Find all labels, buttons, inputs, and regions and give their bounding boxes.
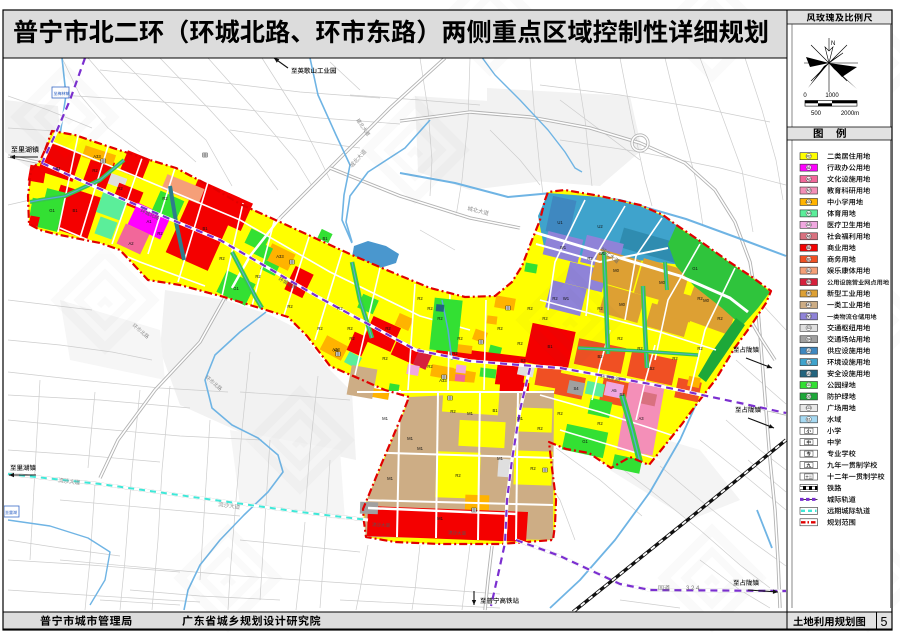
svg-text:U1: U1 <box>807 349 811 353</box>
svg-text:M0: M0 <box>703 298 709 303</box>
svg-text:A6: A6 <box>807 234 811 238</box>
svg-text:R2: R2 <box>347 326 353 331</box>
svg-text:M1: M1 <box>467 411 473 416</box>
svg-text:B1: B1 <box>202 226 208 231</box>
svg-text:M0: M0 <box>659 280 665 285</box>
svg-text:M1: M1 <box>387 476 393 481</box>
svg-text:R2: R2 <box>717 316 723 321</box>
svg-text:M1: M1 <box>806 303 811 307</box>
svg-text:S3: S3 <box>807 326 811 330</box>
svg-text:R2: R2 <box>382 356 388 361</box>
svg-text:R2: R2 <box>517 341 523 346</box>
svg-text:B1: B1 <box>72 208 78 213</box>
svg-text:R2: R2 <box>455 473 461 478</box>
svg-text:M1: M1 <box>437 516 443 521</box>
svg-text:R2: R2 <box>219 256 225 261</box>
svg-text:M1: M1 <box>497 456 503 461</box>
svg-text:G2: G2 <box>806 395 811 399</box>
svg-text:U1: U1 <box>557 220 563 225</box>
svg-text:R2: R2 <box>557 411 563 416</box>
svg-text:R2: R2 <box>530 466 536 471</box>
svg-text:S4: S4 <box>807 337 811 341</box>
svg-text:W1: W1 <box>560 245 567 250</box>
svg-text:A33: A33 <box>276 254 284 259</box>
svg-text:M1: M1 <box>382 416 388 421</box>
svg-text:B1: B1 <box>492 408 498 413</box>
svg-text:A2: A2 <box>807 177 811 181</box>
svg-text:R2: R2 <box>537 426 543 431</box>
svg-text:R2: R2 <box>597 421 603 426</box>
svg-text:R2: R2 <box>287 304 293 309</box>
svg-text:R2: R2 <box>587 256 593 261</box>
svg-text:5: 5 <box>881 615 888 629</box>
svg-text:R2: R2 <box>385 326 391 331</box>
svg-text:R2: R2 <box>427 306 433 311</box>
svg-text:A4: A4 <box>807 212 811 216</box>
svg-text:R2: R2 <box>92 168 98 173</box>
svg-text:R2: R2 <box>337 306 343 311</box>
svg-text:G1: G1 <box>806 383 811 387</box>
svg-text:R2: R2 <box>457 336 463 341</box>
svg-text:G1: G1 <box>582 439 588 444</box>
svg-text:A3: A3 <box>807 189 811 193</box>
svg-text:R2: R2 <box>162 196 168 201</box>
svg-text:M1: M1 <box>417 446 423 451</box>
svg-text:R2: R2 <box>672 356 678 361</box>
svg-text:R2: R2 <box>349 336 355 341</box>
svg-text:M0: M0 <box>806 292 811 296</box>
svg-text:A1: A1 <box>146 219 152 224</box>
svg-text:A2: A2 <box>128 241 134 246</box>
svg-text:S3: S3 <box>520 358 526 363</box>
svg-text:B1: B1 <box>807 246 811 250</box>
svg-text:A1: A1 <box>807 166 811 170</box>
svg-text:R2: R2 <box>317 326 323 331</box>
svg-text:B2: B2 <box>619 392 625 397</box>
svg-text:B4: B4 <box>807 280 811 284</box>
svg-text:B2: B2 <box>649 366 655 371</box>
svg-text:R2: R2 <box>497 326 503 331</box>
svg-text:B3: B3 <box>807 269 811 273</box>
svg-text:M1: M1 <box>407 436 413 441</box>
svg-text:R2: R2 <box>697 296 703 301</box>
svg-text:R2: R2 <box>617 336 623 341</box>
svg-text:R2: R2 <box>437 316 443 321</box>
svg-text:R2: R2 <box>427 364 433 369</box>
svg-text:U3: U3 <box>807 372 811 376</box>
svg-text:R2: R2 <box>637 346 643 351</box>
svg-text:E1: E1 <box>807 418 811 422</box>
svg-text:M1: M1 <box>517 416 523 421</box>
svg-text:R2: R2 <box>452 351 458 356</box>
svg-text:R2: R2 <box>417 296 423 301</box>
svg-text:G3: G3 <box>806 406 811 410</box>
svg-text:2000m: 2000m <box>841 111 859 117</box>
svg-text:A5: A5 <box>807 223 811 227</box>
svg-text:B2: B2 <box>597 354 603 359</box>
svg-text:R2: R2 <box>255 274 261 279</box>
svg-text:R2: R2 <box>807 154 811 158</box>
svg-text:N: N <box>831 41 835 47</box>
svg-text:M0: M0 <box>619 302 625 307</box>
svg-text:A3: A3 <box>638 416 644 421</box>
svg-text:W1: W1 <box>599 251 606 256</box>
svg-text:500: 500 <box>811 111 822 117</box>
svg-text:R2: R2 <box>450 409 456 414</box>
svg-text:R2: R2 <box>157 231 163 236</box>
svg-text:A33: A33 <box>332 347 340 352</box>
svg-text:A33: A33 <box>93 154 101 159</box>
svg-text:U2: U2 <box>597 224 603 229</box>
svg-text:R2: R2 <box>697 346 703 351</box>
svg-text:R2: R2 <box>552 296 558 301</box>
svg-text:W1: W1 <box>806 315 811 319</box>
svg-text:1000: 1000 <box>825 93 839 99</box>
svg-text:A5: A5 <box>611 388 617 393</box>
svg-text:G1: G1 <box>233 286 239 291</box>
svg-text:B2: B2 <box>807 257 811 261</box>
svg-text:R2: R2 <box>117 186 123 191</box>
svg-text:M0: M0 <box>613 268 619 273</box>
svg-text:G1: G1 <box>692 266 698 271</box>
svg-text:U2: U2 <box>807 360 811 364</box>
svg-text:B1: B1 <box>322 236 328 241</box>
svg-text:A33: A33 <box>806 200 812 204</box>
svg-text:G1: G1 <box>49 208 55 213</box>
svg-text:S4: S4 <box>573 386 579 391</box>
